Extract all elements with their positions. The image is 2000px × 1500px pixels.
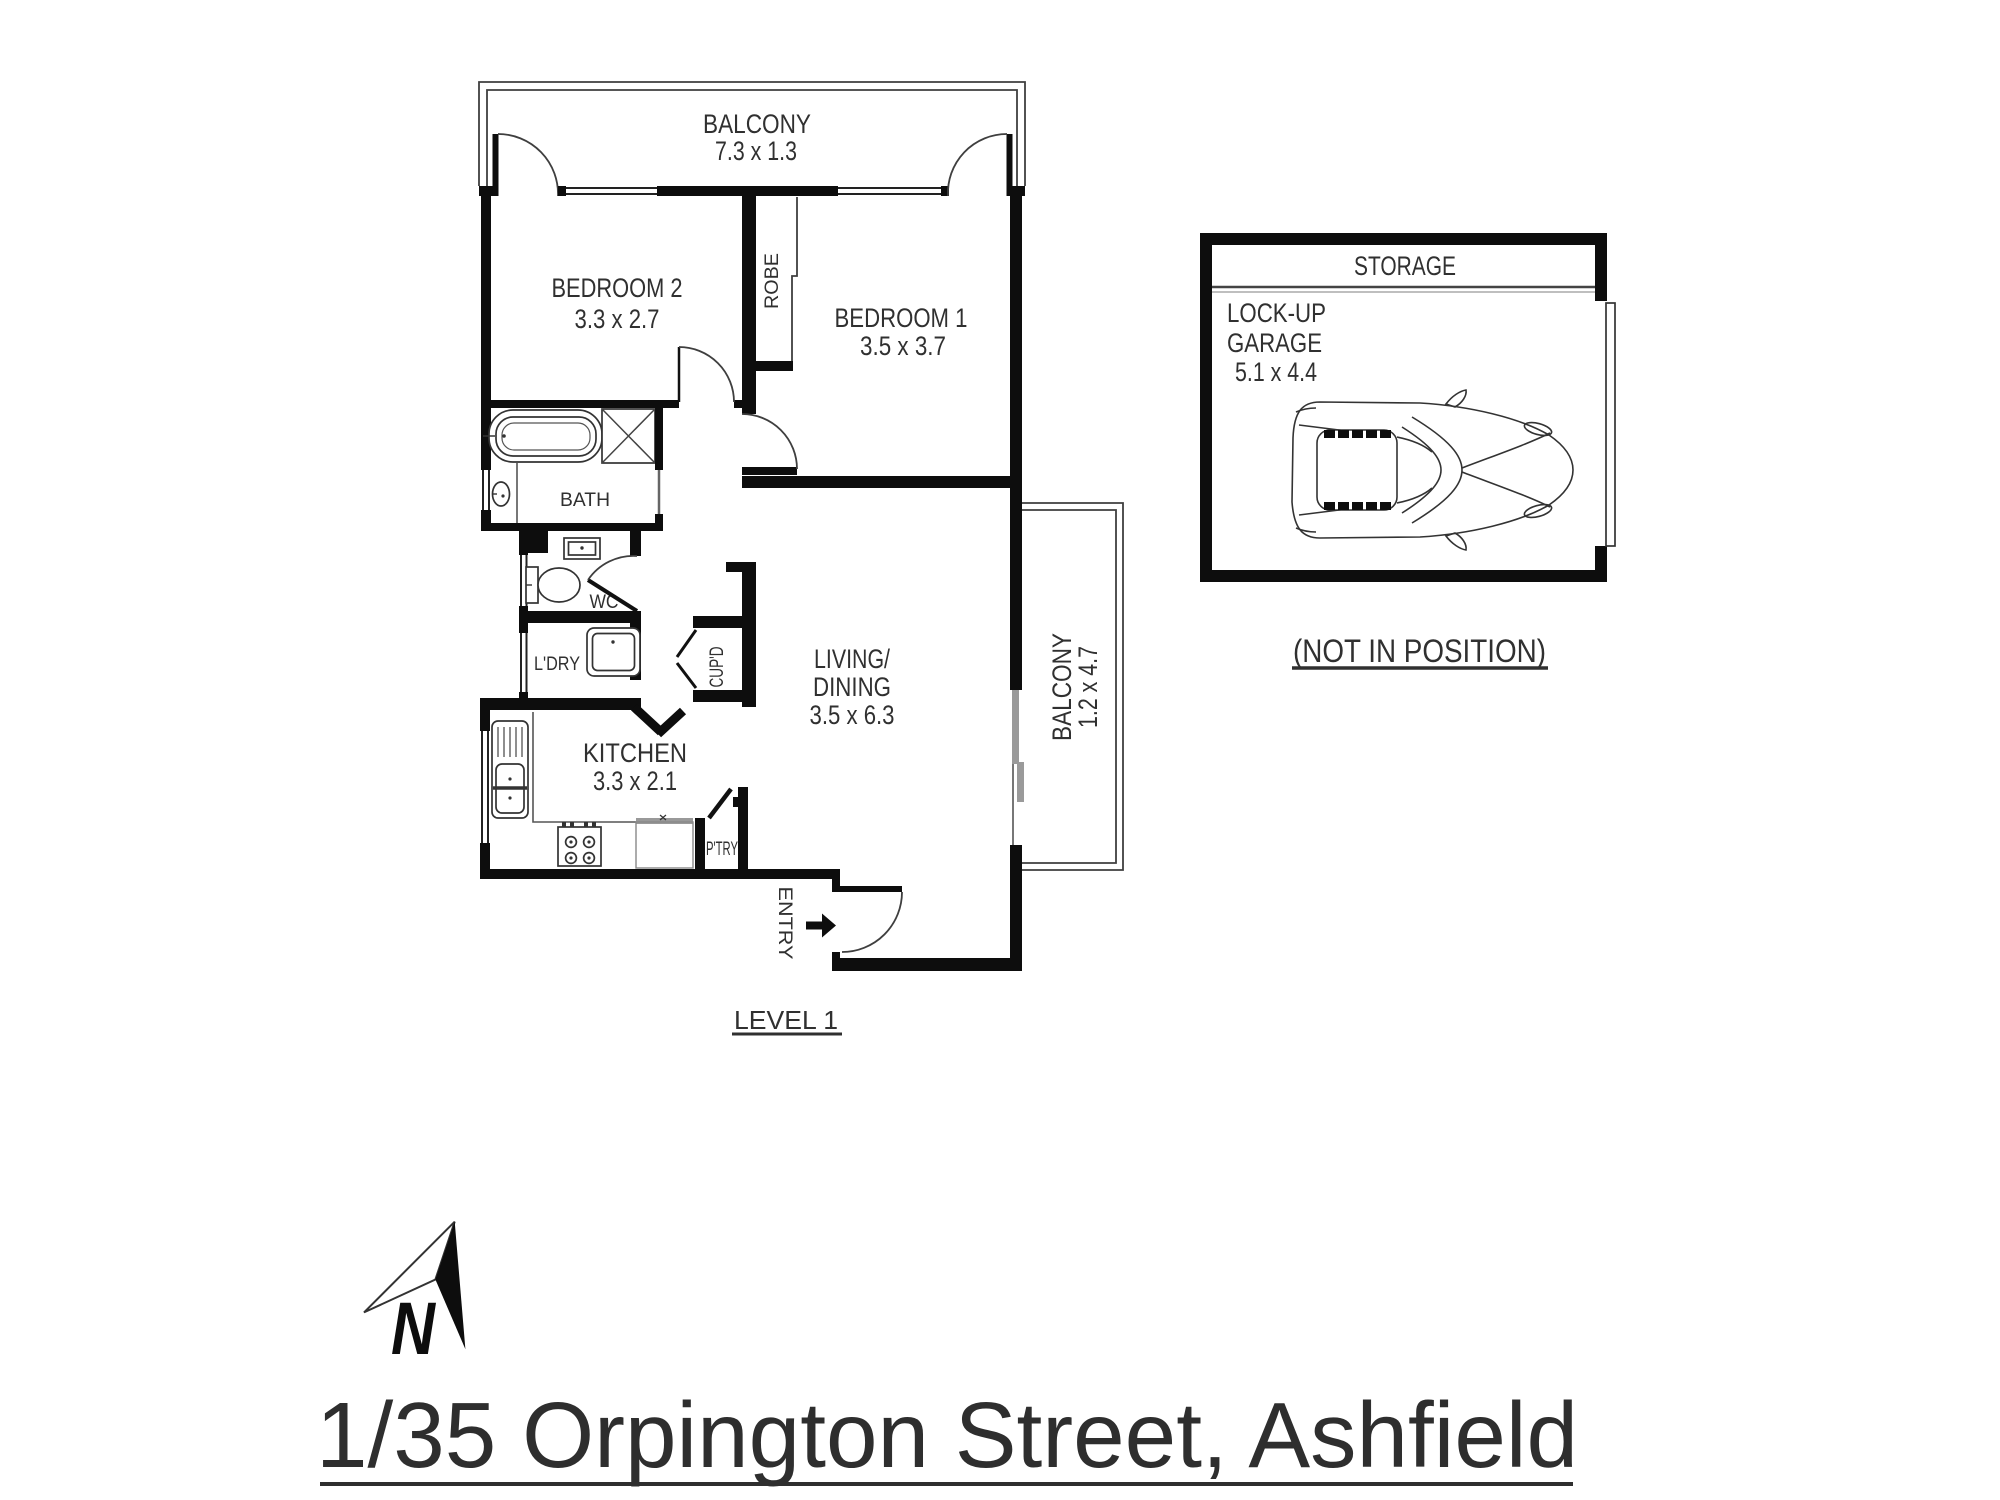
svg-text:5.1 x 4.4: 5.1 x 4.4 (1235, 357, 1317, 387)
svg-text:(NOT IN POSITION): (NOT IN POSITION) (1293, 633, 1546, 669)
svg-text:BATH: BATH (560, 490, 610, 511)
svg-text:LIVING/: LIVING/ (814, 644, 890, 674)
svg-text:3.3 x 2.7: 3.3 x 2.7 (575, 304, 660, 334)
svg-text:3.5 x 6.3: 3.5 x 6.3 (810, 700, 895, 730)
svg-text:L'DRY: L'DRY (534, 654, 580, 675)
svg-text:BEDROOM 1: BEDROOM 1 (835, 303, 968, 333)
svg-text:BALCONY: BALCONY (703, 109, 811, 139)
svg-text:1/35 Orpington Street, Ashfiel: 1/35 Orpington Street, Ashfield (316, 1383, 1578, 1487)
svg-text:ROBE: ROBE (762, 253, 783, 309)
svg-text:ENTRY: ENTRY (774, 887, 795, 960)
svg-text:LOCK-UP: LOCK-UP (1227, 298, 1326, 328)
svg-text:KITCHEN: KITCHEN (583, 738, 687, 768)
svg-text:7.3 x 1.3: 7.3 x 1.3 (715, 136, 797, 166)
svg-text:STORAGE: STORAGE (1354, 251, 1456, 281)
svg-text:LEVEL 1: LEVEL 1 (734, 1005, 838, 1035)
svg-text:DINING: DINING (813, 672, 891, 702)
svg-text:P'TRY: P'TRY (706, 839, 738, 860)
svg-text:GARAGE: GARAGE (1227, 328, 1322, 358)
svg-text:N: N (391, 1287, 436, 1370)
svg-text:1.2 x 4.7: 1.2 x 4.7 (1073, 646, 1103, 728)
svg-text:BEDROOM 2: BEDROOM 2 (552, 273, 683, 303)
svg-text:3.5 x 3.7: 3.5 x 3.7 (860, 331, 946, 361)
svg-text:CUP'D: CUP'D (707, 647, 728, 688)
svg-text:3.3 x 2.1: 3.3 x 2.1 (593, 766, 677, 796)
